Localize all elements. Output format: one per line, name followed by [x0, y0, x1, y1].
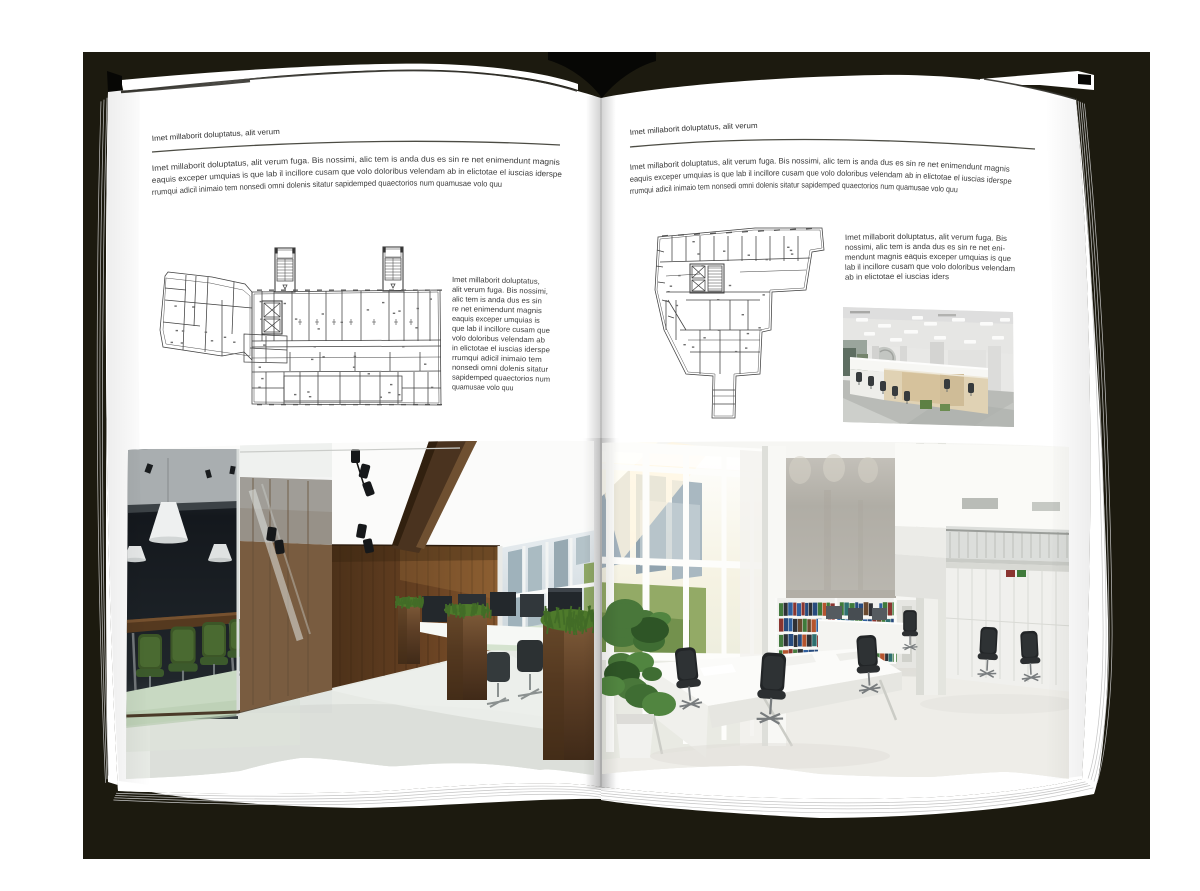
svg-text:quamusae volo quu: quamusae volo quu: [452, 382, 514, 392]
svg-text:ab in elictotae el iuscias ide: ab in elictotae el iuscias iders: [845, 272, 949, 282]
